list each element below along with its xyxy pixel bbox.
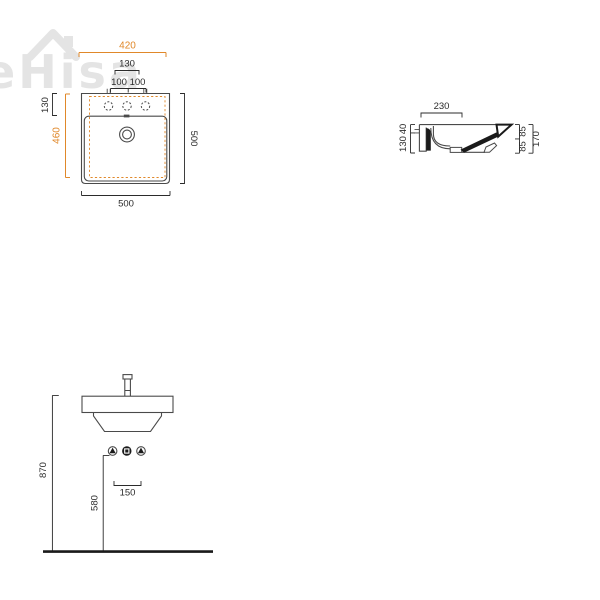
drain-outer-circle	[120, 127, 135, 142]
water-connection-triangle-icon	[137, 447, 146, 456]
dim-label-870: 870	[38, 462, 49, 478]
side-bowl-inner-curve	[433, 126, 450, 146]
dim-line-460	[66, 94, 71, 178]
dim-label-100-left: 100	[111, 77, 127, 88]
drain-connection-square-icon	[122, 446, 131, 455]
dim-label-170: 170	[531, 131, 542, 147]
washbasin-technical-drawing: eHisa 420 130 100 100 130 460	[0, 0, 600, 600]
dim-line-500-right	[180, 94, 185, 184]
dim-label-100-right: 100	[130, 77, 146, 88]
side-section-left	[426, 128, 431, 151]
dim-label-85-upper: 85	[518, 126, 529, 137]
side-view: 230 40 130 85 85 170	[398, 101, 542, 153]
dim-line-580	[103, 455, 109, 551]
dim-line-230	[421, 113, 462, 118]
dim-label-230: 230	[434, 101, 450, 112]
side-drain-boss	[450, 147, 462, 152]
faucet-hole-left	[104, 102, 112, 110]
dim-label-85-lower: 85	[518, 141, 529, 152]
dim-label-130-left: 130	[40, 97, 51, 113]
side-left-marks	[415, 130, 420, 133]
basin-front-body	[82, 396, 173, 412]
inner-dimension-outline	[90, 97, 166, 178]
front-view: 150 580 870	[38, 375, 213, 552]
dim-label-130-top: 130	[119, 59, 135, 70]
side-back-triangle	[497, 125, 512, 137]
dim-label-460: 460	[52, 127, 63, 144]
basin-bowl-top-view	[84, 116, 167, 181]
overflow-notch	[124, 115, 130, 118]
dim-label-500-right: 500	[188, 131, 199, 147]
side-section-back-slope	[461, 132, 501, 152]
dim-label-130-side: 130	[398, 136, 409, 152]
dim-label-150: 150	[120, 488, 136, 499]
dim-line-150	[114, 481, 141, 486]
dim-line-40-130	[411, 125, 416, 153]
side-front-panel	[419, 125, 426, 152]
basin-front-bowl	[94, 413, 162, 432]
watermark-text: eHisa	[0, 45, 143, 99]
faucet-hole-right	[141, 102, 149, 110]
water-connection-triangle-icon	[108, 447, 117, 456]
connection-symbols	[108, 446, 145, 455]
dim-label-500-bottom: 500	[118, 199, 134, 210]
dim-label-40: 40	[398, 124, 409, 135]
faucet-stem	[125, 379, 131, 396]
dim-label-580: 580	[90, 495, 101, 511]
side-rear-foot	[484, 143, 497, 152]
faucet-cap	[123, 375, 132, 379]
drain-inner-circle	[123, 130, 132, 139]
dim-line-500-bottom	[82, 191, 171, 196]
drawing-canvas: eHisa 420 130 100 100 130 460	[0, 0, 600, 600]
dim-line-870	[52, 395, 58, 551]
faucet-hole-center	[123, 102, 131, 110]
dim-label-420: 420	[119, 41, 136, 52]
